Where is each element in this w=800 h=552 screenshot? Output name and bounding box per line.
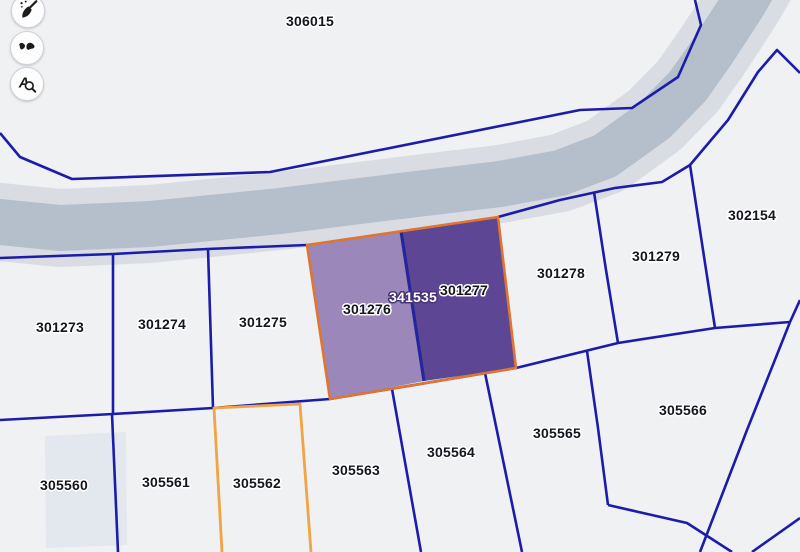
parcel-label-305562: 305562	[233, 475, 281, 491]
map-application: 3060153021543012793012783012773415353012…	[0, 0, 800, 552]
parcel-label-305563: 305563	[332, 462, 380, 478]
map-canvas[interactable]: 3060153021543012793012783012773415353012…	[0, 0, 800, 552]
map-toolbar: A	[0, 0, 60, 120]
text-search-icon: A	[16, 72, 38, 97]
parcel-label-301275: 301275	[239, 314, 287, 330]
map-features-button[interactable]	[10, 31, 44, 65]
parcel-label-301274: 301274	[138, 316, 186, 332]
label-search-button[interactable]: A	[10, 67, 44, 101]
parcel-label-305566: 305566	[659, 402, 707, 418]
parcel-label-341535: 341535	[389, 289, 437, 305]
parcel-label-306015: 306015	[286, 13, 334, 29]
parcel-label-301277: 301277	[440, 282, 488, 298]
parcel-label-305565: 305565	[533, 425, 581, 441]
shapes-icon	[16, 36, 38, 61]
parcel-label-305560: 305560	[40, 477, 88, 493]
parcel-label-301278: 301278	[537, 265, 585, 281]
parcel-label-301279: 301279	[632, 248, 680, 264]
parcel-label-305561: 305561	[142, 474, 190, 490]
parcel-label-302154: 302154	[728, 207, 776, 223]
parcel-label-305564: 305564	[427, 444, 475, 460]
parcel-label-301276: 301276	[343, 301, 391, 317]
broom-icon	[17, 0, 39, 24]
parcel-label-301273: 301273	[36, 319, 84, 335]
clear-selection-button[interactable]	[11, 0, 45, 28]
